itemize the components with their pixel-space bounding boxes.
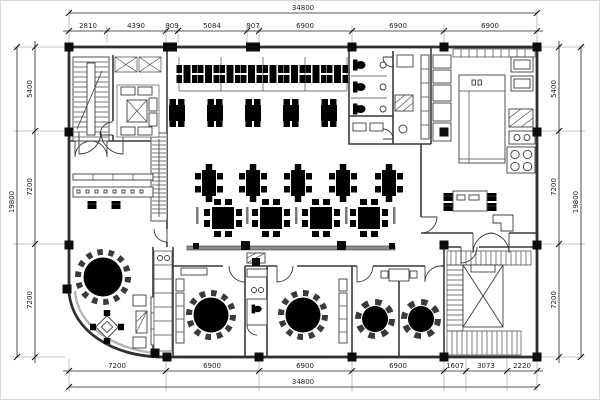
dim-top-total: 34800 [292, 4, 314, 12]
sink-icon [514, 135, 520, 141]
booth-seating-row [177, 65, 349, 83]
dim-top-seg-2: 909 [165, 22, 178, 30]
round-table-12 [189, 293, 233, 337]
dining-table-8 [204, 199, 242, 237]
dim-top-seg-4: 907 [246, 22, 259, 30]
toilet-icon [353, 82, 366, 93]
dimension-left: 5400 7200 7200 19800 [8, 41, 38, 363]
dim-bottom-total: 34800 [292, 378, 314, 386]
dim-right-total: 19800 [572, 191, 580, 213]
dim-left-seg-1: 7200 [26, 178, 34, 196]
sink-icon [399, 125, 407, 133]
private-room-d [404, 302, 438, 336]
dim-bottom-seg-0: 7200 [108, 362, 126, 370]
dining-table-4 [283, 99, 299, 127]
dining-table-8 [350, 199, 388, 237]
dim-left-total: 19800 [8, 191, 16, 213]
dining-table-6 [195, 164, 223, 202]
restrooms [353, 55, 429, 139]
dim-top-seg-7: 6900 [481, 22, 499, 30]
dim-bottom-seg-2: 6900 [296, 362, 314, 370]
l-counter [493, 215, 513, 231]
dining-table-4 [169, 99, 185, 127]
round-table-12 [281, 293, 325, 337]
staircase-top-left [73, 57, 109, 141]
sink-icon [380, 84, 386, 90]
dim-top-seg-3: 5084 [203, 22, 221, 30]
dining-table-8 [302, 199, 340, 237]
booth-table [284, 65, 305, 83]
dim-top-seg-5: 6900 [296, 22, 314, 30]
dim-left-seg-2: 7200 [26, 291, 34, 309]
dimension-bottom: 7200 6900 6900 6900 1607 3073 2220 34800 [63, 362, 543, 390]
dim-right-seg-0: 5400 [550, 80, 558, 98]
six-seat-table-row [195, 164, 403, 202]
private-room-c [358, 302, 392, 336]
dim-right-seg-2: 7200 [550, 291, 558, 309]
four-seat-table-row [169, 99, 337, 127]
dim-bottom-seg-5: 3073 [477, 362, 495, 370]
dining-table-6 [284, 164, 312, 202]
elevator-shaft [463, 265, 503, 327]
dining-table-4 [245, 99, 261, 127]
booth-table [306, 65, 327, 83]
kitchen [433, 55, 535, 231]
toilet-icon [353, 60, 366, 71]
round-table-8 [404, 302, 438, 336]
dining-table-6 [239, 164, 267, 202]
dimension-right: 5400 7200 7200 19800 [550, 41, 584, 363]
private-room-a [176, 268, 233, 343]
service-pantry [154, 251, 172, 351]
floor-plan-image: 2810 4390 909 5084 907 6900 6900 6900 34… [0, 0, 600, 400]
sink-icon [380, 62, 386, 68]
private-room-b [281, 279, 347, 343]
booth-table [198, 65, 219, 83]
booth-table [263, 65, 284, 83]
room-cd-cabinet [381, 269, 417, 281]
sink-icon [524, 135, 530, 141]
reception-counter [73, 174, 153, 209]
booth-table [220, 65, 241, 83]
toilet-icon [353, 104, 366, 115]
dim-right-seg-1: 7200 [550, 178, 558, 196]
dining-table-6 [329, 164, 357, 202]
booth-table [241, 65, 262, 83]
dining-table-4 [321, 99, 337, 127]
bar-stool [112, 201, 121, 209]
dim-bottom-seg-3: 6900 [389, 362, 407, 370]
booth-table [177, 65, 198, 83]
floor-plan-canvas: 2810 4390 909 5084 907 6900 6900 6900 34… [1, 1, 600, 400]
dining-table-4 [207, 99, 223, 127]
dimension-top: 2810 4390 909 5084 907 6900 6900 6900 34… [63, 4, 543, 34]
banquet-round-table [78, 252, 128, 302]
dim-bottom-seg-6: 2220 [513, 362, 531, 370]
kitchen-island [459, 75, 505, 163]
partition-rail [187, 241, 395, 250]
dining-table-8 [252, 199, 290, 237]
dining-table-6 [375, 164, 403, 202]
booth-table [327, 65, 348, 83]
dim-top-seg-1: 4390 [127, 22, 145, 30]
bar-stool [88, 201, 97, 209]
dim-bottom-seg-1: 6900 [203, 362, 221, 370]
lounge-sofa-set [117, 85, 159, 137]
round-table-8 [358, 302, 392, 336]
dim-top-seg-0: 2810 [79, 22, 97, 30]
sink-icon [380, 106, 386, 112]
dim-top-seg-6: 6900 [389, 22, 407, 30]
dim-left-seg-0: 5400 [26, 80, 34, 98]
dim-bottom-seg-4: 1607 [446, 362, 464, 370]
prep-table [453, 191, 487, 211]
decor-table-set [90, 310, 124, 344]
